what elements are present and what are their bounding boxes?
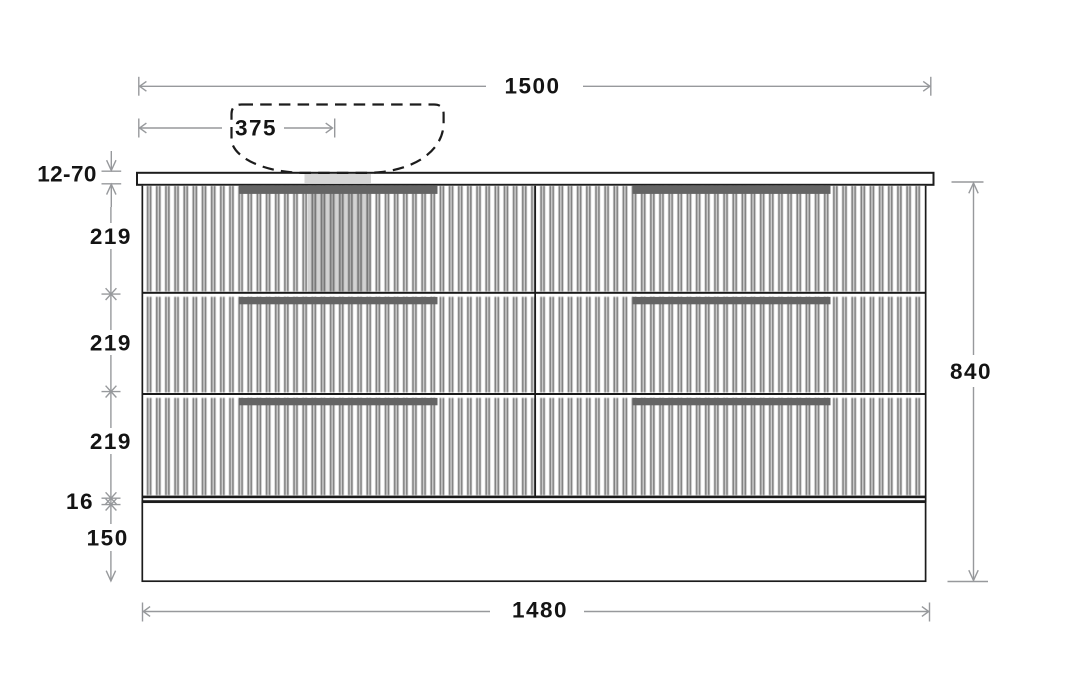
svg-text:12-70: 12-70 bbox=[37, 161, 97, 186]
svg-text:840: 840 bbox=[950, 359, 992, 384]
svg-text:375: 375 bbox=[235, 115, 277, 140]
svg-text:16: 16 bbox=[66, 489, 94, 514]
svg-text:150: 150 bbox=[87, 525, 129, 550]
svg-text:219: 219 bbox=[90, 429, 132, 454]
svg-text:219: 219 bbox=[90, 224, 132, 249]
svg-text:1500: 1500 bbox=[504, 74, 560, 99]
svg-text:1480: 1480 bbox=[512, 597, 568, 622]
svg-text:219: 219 bbox=[90, 331, 132, 356]
